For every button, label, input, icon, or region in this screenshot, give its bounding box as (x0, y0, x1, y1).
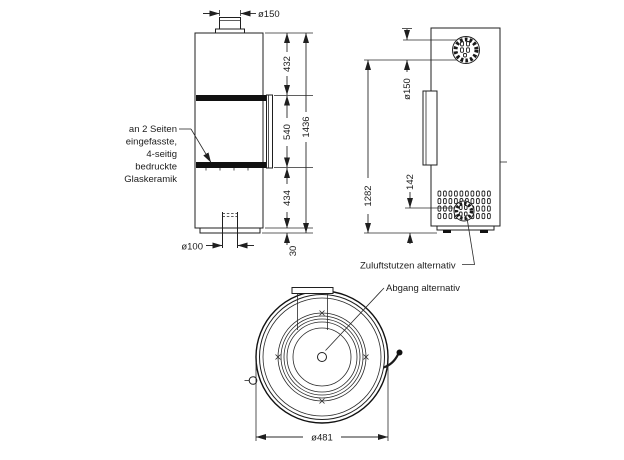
dim-label-30: 30 (288, 246, 299, 257)
top-center-outlet (318, 353, 327, 362)
front-view: ø150 432 540 434 30 1436 (124, 9, 313, 256)
dim-label-1282: 1282 (363, 185, 374, 206)
note-line-1: an 2 Seiten (129, 124, 177, 135)
door-hinge-knob (245, 377, 257, 385)
dim-flue-diameter-side: ø150 (402, 29, 413, 100)
dim-label-1436: 1436 (301, 116, 312, 137)
dim-label-540: 540 (282, 124, 293, 140)
top-flue-rings (276, 311, 369, 404)
dim-481: ø481 (256, 362, 388, 444)
side-view: ø150 1282 14 (360, 28, 507, 272)
label-zuluftstutzen: Zuluftstutzen alternativ (360, 261, 456, 272)
rear-flue-outlet (364, 37, 480, 64)
front-flue-collar (216, 17, 245, 33)
note-line-4: bedruckte (135, 162, 177, 173)
glass-bottom-frame (196, 162, 267, 168)
front-body-outline (195, 33, 263, 228)
side-glass-strip (423, 91, 437, 165)
label-abgang: Abgang alternativ (386, 283, 460, 294)
front-plinth (200, 228, 260, 233)
glass-top-frame (196, 95, 267, 101)
dim-label-inlet: ø100 (181, 242, 203, 253)
dim-flue-diameter-front: ø150 (203, 9, 280, 20)
dim-label-481: ø481 (311, 433, 333, 444)
technical-drawing-page: ø150 432 540 434 30 1436 (0, 0, 624, 460)
door-handle (384, 350, 403, 368)
side-glass-edge (267, 95, 273, 168)
dim-142: 142 (405, 174, 416, 244)
dim-chain-front: 432 540 434 30 1436 (282, 33, 312, 256)
dim-inlet-diameter: ø100 (181, 242, 254, 253)
dim-label-434: 434 (282, 190, 293, 206)
side-plinth (437, 226, 494, 230)
dim-label-142: 142 (405, 174, 416, 190)
stove-dimension-drawing: ø150 432 540 434 30 1436 (0, 0, 624, 460)
top-view: ø481 Abgang alternativ (245, 283, 461, 444)
dim-label-flue-front: ø150 (258, 9, 280, 20)
dim-label-flue-side: ø150 (402, 78, 413, 100)
note-line-5: Glaskeramik (124, 174, 177, 185)
note-line-2: eingefasste, (126, 137, 177, 148)
dim-label-432: 432 (282, 56, 293, 72)
note-line-3: 4-seitig (146, 149, 177, 160)
